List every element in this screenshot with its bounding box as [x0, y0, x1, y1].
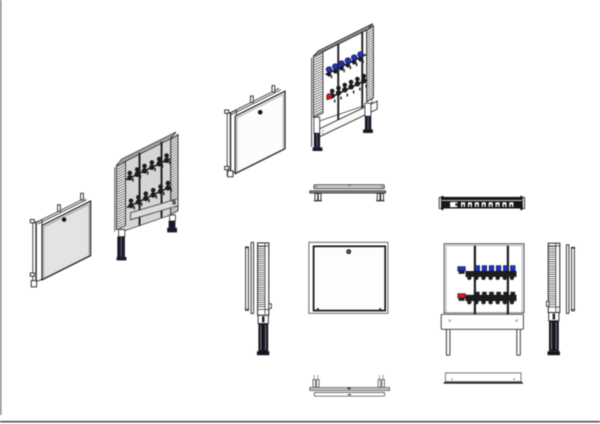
- svg-text:>: >: [448, 319, 451, 325]
- svg-text:<: <: [515, 319, 518, 325]
